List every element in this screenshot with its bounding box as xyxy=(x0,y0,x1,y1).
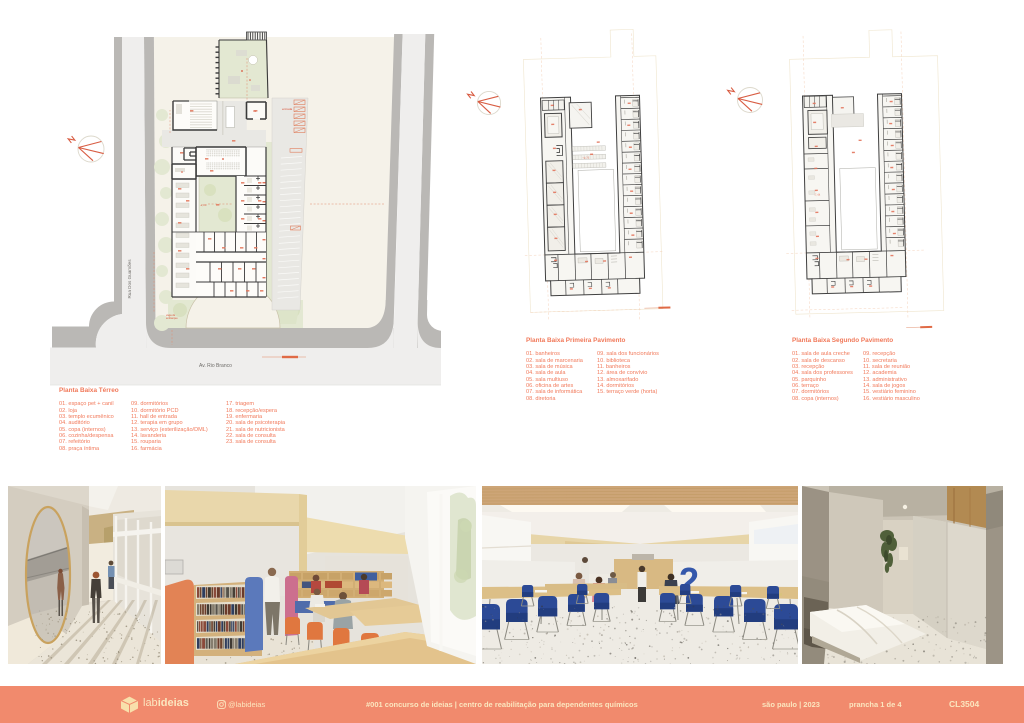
svg-text:+2,75: +2,75 xyxy=(582,156,590,160)
svg-text:-2,00: -2,00 xyxy=(200,203,207,207)
svg-text:Rua Dos Guamões: Rua Dos Guamões xyxy=(127,259,132,299)
svg-text:-7,44: -7,44 xyxy=(814,193,821,197)
svg-text:entrada: entrada xyxy=(282,107,293,111)
svg-text:embarque: embarque xyxy=(166,316,178,320)
svg-text:Av. Rio Branco: Av. Rio Branco xyxy=(199,363,232,369)
